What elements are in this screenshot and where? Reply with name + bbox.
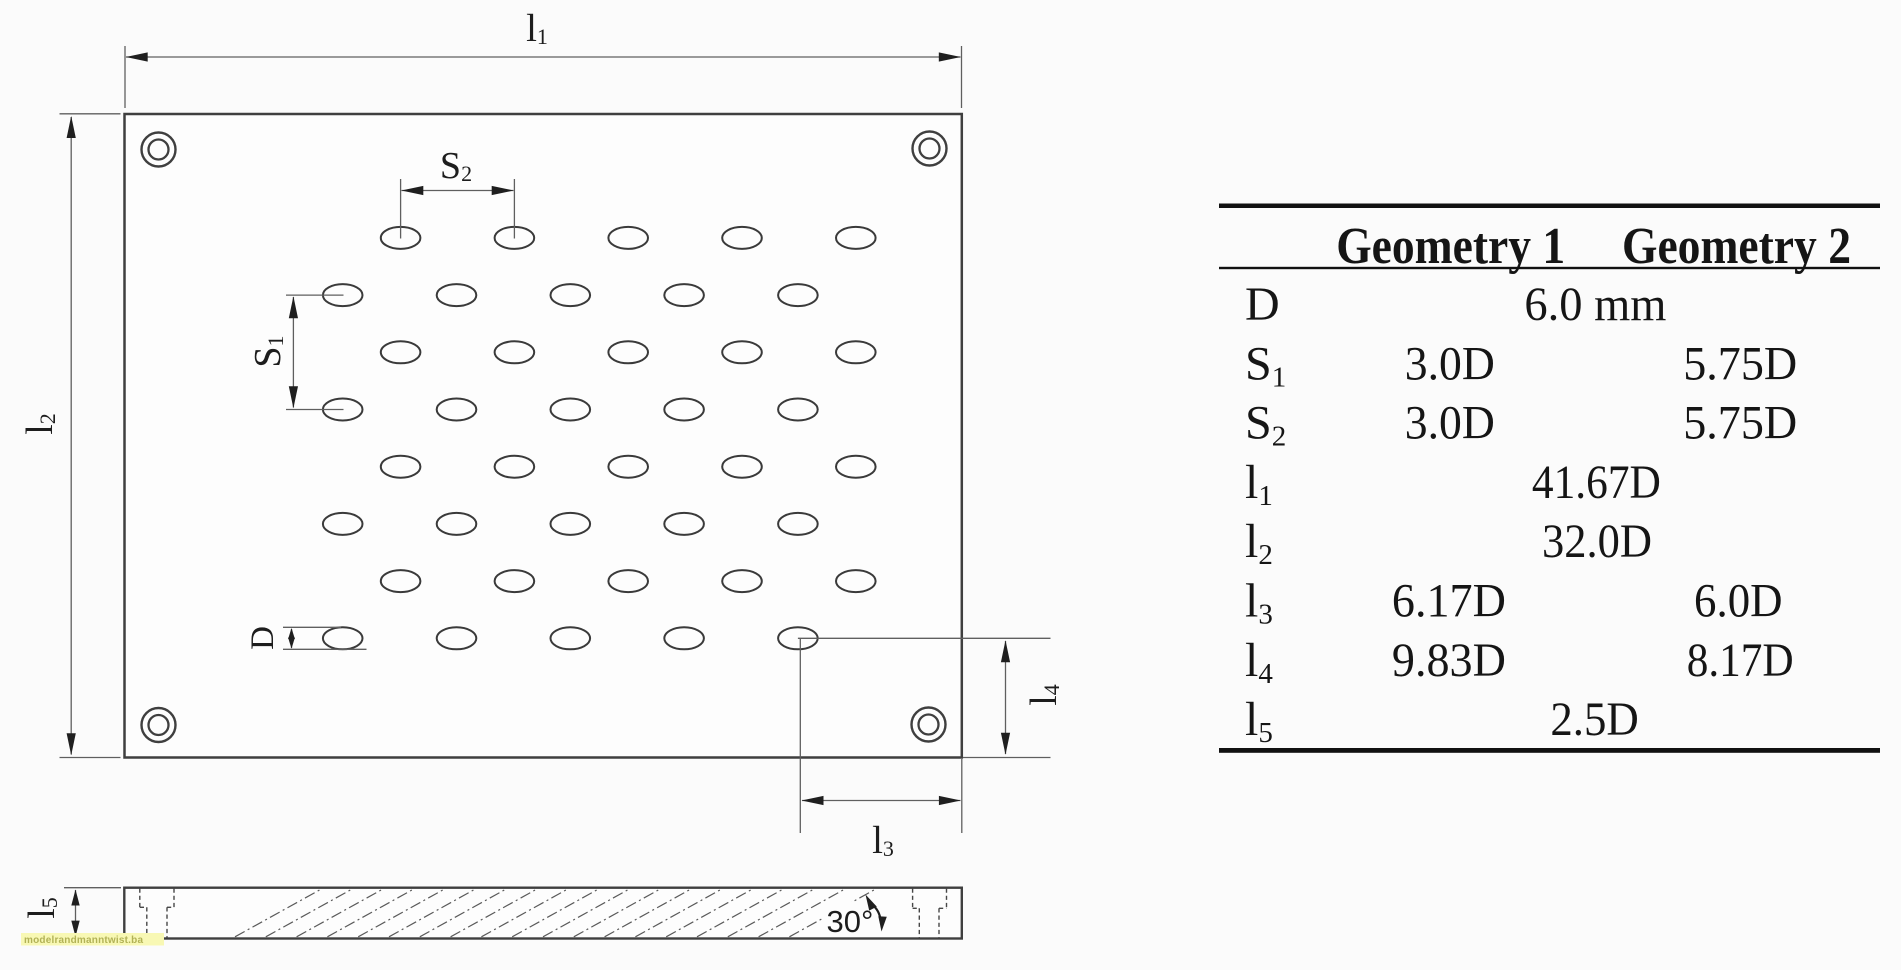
svg-text:modelrandmanntwist.ba: modelrandmanntwist.ba (24, 935, 143, 946)
svg-text:6.0D: 6.0D (1694, 575, 1783, 628)
svg-text:6.17D: 6.17D (1392, 575, 1506, 628)
svg-text:3.0D: 3.0D (1405, 337, 1495, 390)
svg-text:9.83D: 9.83D (1392, 634, 1506, 687)
svg-text:5.75D: 5.75D (1683, 397, 1797, 450)
svg-text:3.0D: 3.0D (1405, 397, 1495, 450)
svg-text:5.75D: 5.75D (1683, 337, 1797, 390)
svg-text:8.17D: 8.17D (1687, 634, 1794, 687)
svg-text:6.0 mm: 6.0 mm (1524, 278, 1666, 331)
svg-text:30°: 30° (827, 904, 874, 939)
svg-text:32.0D: 32.0D (1542, 515, 1652, 568)
svg-text:D: D (1245, 278, 1280, 331)
svg-text:Geometry 2: Geometry 2 (1622, 218, 1851, 275)
svg-text:Geometry 1: Geometry 1 (1336, 218, 1565, 275)
svg-text:D: D (245, 626, 281, 650)
svg-text:2.5D: 2.5D (1550, 693, 1639, 746)
svg-text:41.67D: 41.67D (1532, 456, 1661, 509)
